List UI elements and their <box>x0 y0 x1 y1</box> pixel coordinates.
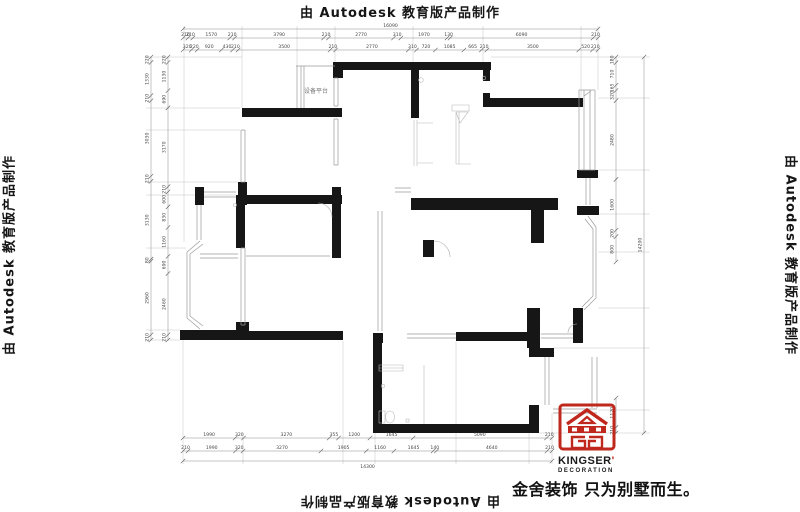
dimension-label: 210 <box>186 32 195 38</box>
sink <box>452 105 471 164</box>
dimension-label: 80 <box>145 257 151 263</box>
dimension-label: 14300 <box>360 464 375 470</box>
dimension-label: 3790 <box>273 32 285 38</box>
dimension-label: 220 <box>190 44 199 50</box>
window <box>586 178 590 205</box>
window <box>545 357 549 405</box>
dimension-label: 140 <box>430 445 439 451</box>
dimension-label: 210 <box>145 94 151 103</box>
dimension-label: 2770 <box>355 32 367 38</box>
dimension-label: 3170 <box>162 141 168 153</box>
dimension-label: 3500 <box>527 44 539 50</box>
dimension-label: 6090 <box>516 32 528 38</box>
kingser-logo-icon <box>558 403 616 451</box>
dimension-label: 355 <box>329 432 338 438</box>
dimension-label: 3030 <box>145 133 151 145</box>
walls <box>180 62 599 433</box>
dimension-label: 4640 <box>486 445 498 451</box>
window <box>334 78 338 106</box>
door-arc <box>318 203 332 217</box>
window <box>241 130 245 182</box>
dimension-label: 665 <box>468 44 477 50</box>
window <box>241 248 245 325</box>
dimension-label: 14200 <box>638 238 644 253</box>
dimension-label: 2480 <box>610 134 616 146</box>
dimension-label: 830 <box>162 213 168 222</box>
dimension-label: 1905 <box>338 445 350 451</box>
brand-slogan: 金舍装饰 只为别墅而生。 <box>512 476 700 500</box>
dimension-label: 210 <box>231 44 240 50</box>
dimension-label: 2770 <box>366 44 378 50</box>
dimension-label: 1570 <box>205 32 217 38</box>
dimension-label: 1990 <box>203 432 215 438</box>
opening <box>395 188 411 192</box>
dimension-label: 1160 <box>162 236 168 248</box>
window <box>592 357 597 408</box>
dimension-label: 210 <box>328 44 337 50</box>
dimension-label: 710 <box>610 70 616 79</box>
dimension-label: 180 <box>610 55 616 64</box>
dimension-label: 220 <box>145 55 151 64</box>
floor-plan: 设备平台 16090210210157021037902102770310197… <box>0 0 800 512</box>
dimension-label: 720 <box>422 44 431 50</box>
brand-name: KINGSER' <box>558 456 624 467</box>
dimension-label: 210 <box>145 174 151 183</box>
dimension-label: 1200 <box>348 432 360 438</box>
window <box>407 334 456 338</box>
dimension-label: 3500 <box>278 44 290 50</box>
window <box>296 66 335 108</box>
dimension-label: 320 <box>610 91 616 100</box>
dimension-label: 1645 <box>408 445 420 451</box>
dimension-label: 310 <box>408 44 417 50</box>
dimension-label: 1990 <box>206 445 218 451</box>
door-knob <box>419 78 424 83</box>
dimension-label: 130 <box>444 32 453 38</box>
dimension-label: 210 <box>162 185 168 194</box>
dimension-label: 210 <box>162 333 168 342</box>
dimension-label: 16090 <box>383 23 398 29</box>
window <box>334 119 338 165</box>
dimension-label: 210 <box>545 432 554 438</box>
dimension-label: 310 <box>393 32 402 38</box>
dimension-label: 1085 <box>444 44 456 50</box>
drain <box>406 419 409 422</box>
extension-lines <box>146 26 650 464</box>
window <box>204 192 236 197</box>
dimension-label: 1160 <box>374 445 386 451</box>
door-arc <box>434 241 450 257</box>
dimension-label: 3270 <box>281 432 293 438</box>
dimension-label: 3270 <box>276 445 288 451</box>
shelf <box>379 365 403 371</box>
toilet-bowl <box>386 411 395 423</box>
window <box>541 334 573 338</box>
fixtures <box>234 76 578 424</box>
dimension-label: 210 <box>545 445 554 451</box>
dimension-label: 210 <box>228 32 237 38</box>
brand-apostrophe: ' <box>612 455 615 467</box>
dimension-label: 1130 <box>162 71 168 83</box>
dimension-label: 165 <box>610 83 616 92</box>
dimension-label: 210 <box>591 32 600 38</box>
dimension-label: 1970 <box>418 32 430 38</box>
partition <box>200 254 238 258</box>
dimension-label: 920 <box>205 44 214 50</box>
platform-label: 设备平台 <box>304 87 328 95</box>
dimension-label: 210 <box>480 44 489 50</box>
dimension-label: 1645 <box>386 432 398 438</box>
dimension-label: 3130 <box>145 214 151 226</box>
drawing-sheet: 由 Autodesk 教育版产品制作 由 Autodesk 教育版产品制作 由 … <box>0 0 800 512</box>
dimension-label: 210 <box>181 445 190 451</box>
dimension-label: 1330 <box>145 73 151 85</box>
dimension-label: 220 <box>162 55 168 64</box>
partition <box>378 211 382 331</box>
closet <box>414 120 433 166</box>
dimension-label: 520 <box>581 44 590 50</box>
dimension-label: 2460 <box>162 298 168 310</box>
dimension-label: 600 <box>162 195 168 204</box>
bay-window-right <box>582 216 596 310</box>
dimension-label: 690 <box>162 261 168 270</box>
dimension-label: 800 <box>610 245 616 254</box>
brand-block: KINGSER' DECORATION <box>558 403 624 475</box>
dimension-label: 210 <box>322 32 331 38</box>
window <box>197 205 201 240</box>
dimension-label: 5090 <box>474 432 486 438</box>
dimension-label: 200 <box>610 229 616 238</box>
dimension-label: 320 <box>235 445 244 451</box>
dimension-label: 210 <box>591 44 600 50</box>
dimension-label: 210 <box>145 333 151 342</box>
dimension-label: 1600 <box>610 199 616 211</box>
brand-subtitle: DECORATION <box>558 467 624 475</box>
dimension-label: 2960 <box>145 292 151 304</box>
dimension-label: 690 <box>162 95 168 104</box>
dimension-label: 320 <box>235 432 244 438</box>
